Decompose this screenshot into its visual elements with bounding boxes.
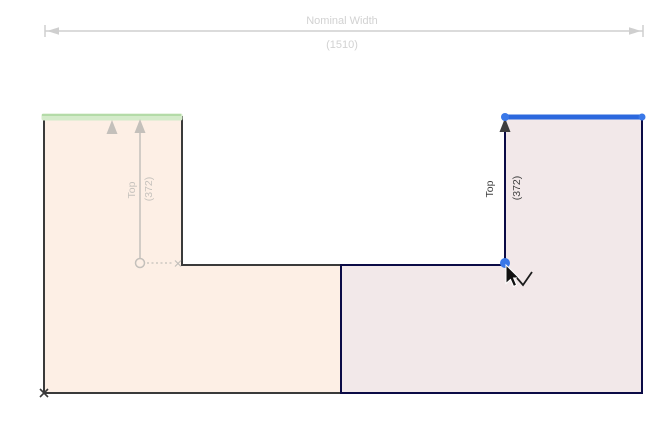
drawing-layer	[0, 0, 658, 432]
nominal-width-value[interactable]: (1510)	[262, 38, 422, 52]
left-panel-top-edge-highlight[interactable]	[42, 114, 183, 121]
nominal-width-label[interactable]: Nominal Width	[262, 14, 422, 28]
left-top-dim-label[interactable]: Top	[125, 160, 139, 220]
cad-canvas[interactable]: Nominal Width (1510) Top (372) Top (372)	[0, 0, 658, 432]
left-panel[interactable]	[44, 117, 341, 393]
vertex-dot-inner-corner[interactable]	[500, 258, 510, 268]
vertex-dot-top-left[interactable]	[501, 113, 509, 121]
left-top-dim-value[interactable]: (372)	[142, 159, 156, 219]
nominal-width-right-arrow-icon	[629, 27, 641, 35]
nominal-width-left-arrow-icon	[47, 27, 59, 35]
vertex-dot-top-right[interactable]	[639, 114, 646, 121]
right-top-dim-label[interactable]: Top	[483, 159, 497, 219]
right-top-dim-value[interactable]: (372)	[510, 158, 524, 218]
